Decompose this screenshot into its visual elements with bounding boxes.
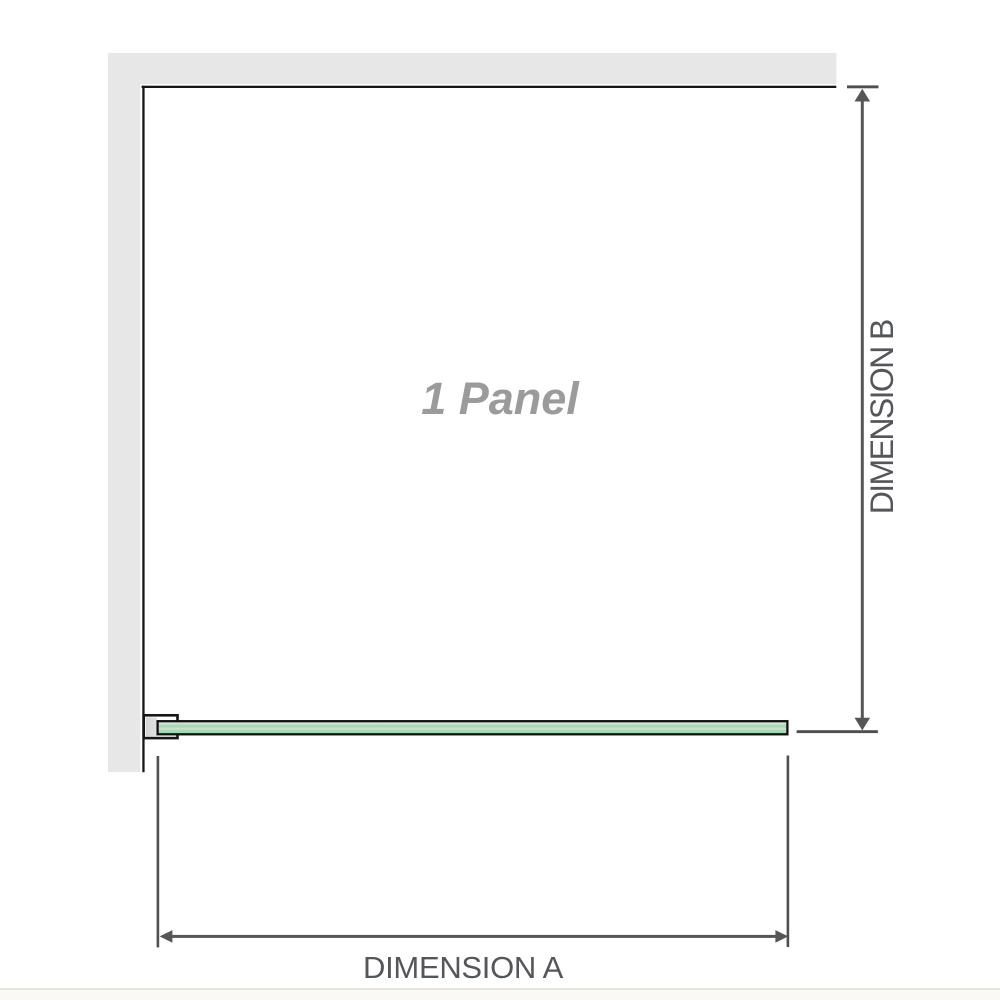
svg-text:DIMENSION B: DIMENSION B	[864, 320, 900, 514]
svg-text:DIMENSION A: DIMENSION A	[363, 950, 564, 985]
svg-text:1 Panel: 1 Panel	[421, 373, 580, 424]
